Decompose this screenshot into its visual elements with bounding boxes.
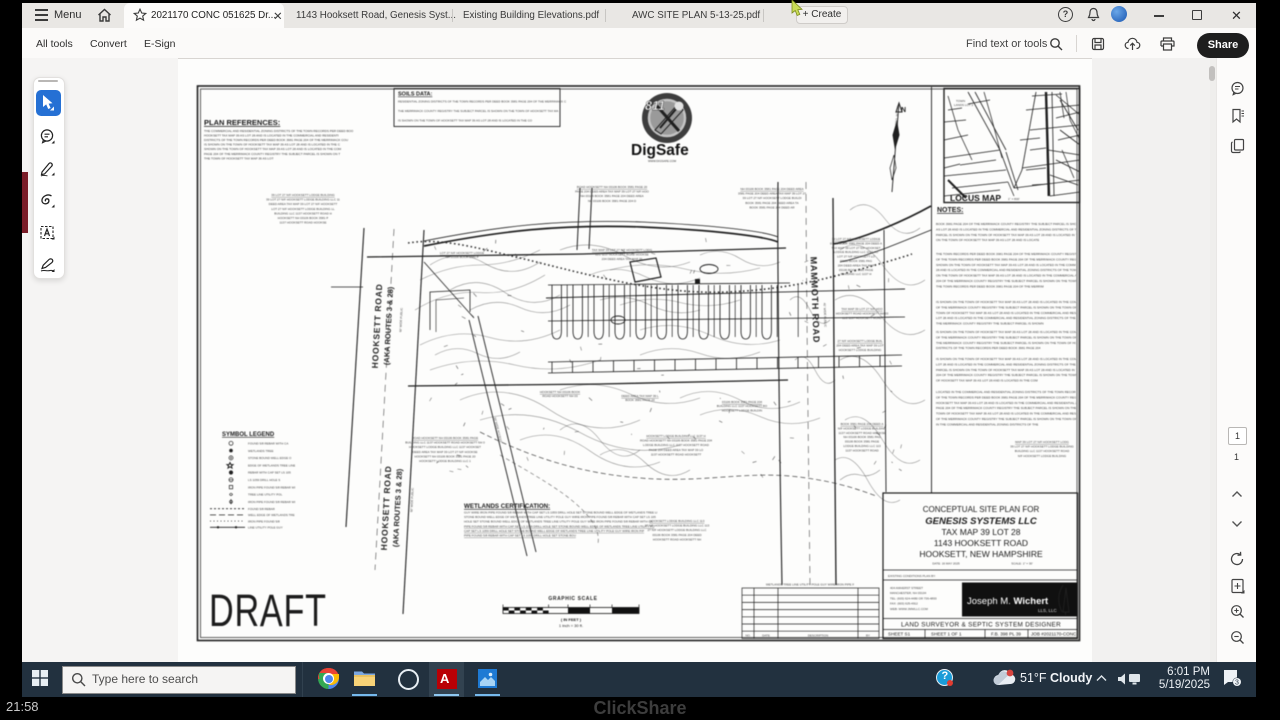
svg-text:TEL: (603) 624-4480 OR 736-4: TEL: (603) 624-4480 OR 736-4893 [890,596,937,600]
svg-text:28 AND IS LOCATED IN THE COMME: 28 AND IS LOCATED IN THE COMMERCIAL AND … [936,268,1092,272]
svg-text:HOOKSETT ROAD HOOKSETT NH: HOOKSETT ROAD HOOKSETT NH [653,537,701,541]
svg-text:STONE BOUND WELL EDGE OF WETLA: STONE BOUND WELL EDGE OF WETLANDS TREE L… [464,515,656,519]
svg-text:LODGE BUILDING LLC 113: LODGE BUILDING LLC 113 [843,444,881,448]
svg-text:GENESIS SYSTEMS LLC: GENESIS SYSTEMS LLC [925,516,1037,527]
svg-text:DESCRIPTION: DESCRIPTION [808,634,829,638]
svg-text:BUILDING LLC 1137 HOOKSETT ROA: BUILDING LLC 1137 HOOKSETT ROAD [1015,449,1070,453]
svg-text:DISTRICTS OF THE TOWN RECORDS: DISTRICTS OF THE TOWN RECORDS PER DEED B… [204,138,348,142]
svg-text:LODGE BUILDING LLC 1137 HOOKSE: LODGE BUILDING LLC 1137 HOOKSETT ROAD [643,443,710,447]
svg-text:BUILDING LLC 1137 HOOKSETT ROA: BUILDING LLC 1137 HOOKSETT ROAD HOOKSETT… [405,441,485,445]
svg-text:HOOKSETT TAX MAP 39 AS LOT 28: HOOKSETT TAX MAP 39 AS LOT 28 AND IS LOC… [204,134,339,138]
svg-text:FOUND 5/8 REBAR WITH CA: FOUND 5/8 REBAR WITH CA [248,442,288,446]
svg-text:BOOK 3581 PAGE 204 DEED AREA T: BOOK 3581 PAGE 204 DEED AREA TA [745,201,798,205]
svg-text:HOOKSETT LODGE BUILDING LLC 11: HOOKSETT LODGE BUILDING LLC 1137 HOOKSET [409,445,481,449]
svg-text:204 DEED AREA TAX MAP 39: 204 DEED AREA TAX MAP 39 [602,257,643,261]
svg-text:THE MERRIMACK COUNTY REGISTRY: THE MERRIMACK COUNTY REGISTRY THE SUBJEC… [936,341,1092,345]
svg-text:39 LOT 27 N/F HOOKSETT LODGE: 39 LOT 27 N/F HOOKSETT LODGE [832,237,880,241]
svg-text:Joseph M. Wichert: Joseph M. Wichert [967,596,1049,607]
svg-text:( IN FEET ): ( IN FEET ) [561,617,582,622]
svg-text:3581 PAGE 204 DEED AREA TAX MA: 3581 PAGE 204 DEED AREA TAX MAP 39 LOT 2… [738,192,806,196]
svg-text:MAP 39 LOT 27 N/F HOOKSETT LOD: MAP 39 LOT 27 N/F HOOKSETT LODG [1015,440,1069,444]
svg-text:LLC 1137 HOOKSETT ROAD: LLC 1137 HOOKSETT ROAD [842,316,882,320]
svg-text:OF HOOKSETT TAX MAP 39 AS LOT: OF HOOKSETT TAX MAP 39 AS LOT 28 AND IS … [936,379,1038,383]
svg-text:IS SHOWN ON THE TOWN OF HOOKSE: IS SHOWN ON THE TOWN OF HOOKSETT TAX MAP… [936,357,1092,361]
svg-text:FOUND 5/8 REBAR: FOUND 5/8 REBAR [248,507,276,511]
svg-text:RESIDENTIAL ZONING DISTRICTS O: RESIDENTIAL ZONING DISTRICTS OF THE TOWN… [398,100,567,104]
svg-text:HOOKSETT TAX MAP 39 AS LOT 28: HOOKSETT TAX MAP 39 AS LOT 28 AND IS LOC… [936,401,1092,405]
svg-text:REBAR WITH CAP SET LS 105: REBAR WITH CAP SET LS 105 [248,471,291,475]
svg-text:ON THE TOWN OF HOOKSETT TAX MA: ON THE TOWN OF HOOKSETT TAX MAP 39 AS LO… [936,274,1092,278]
svg-text:27 N/F HOOKSETT LODGE BUILDING: 27 N/F HOOKSETT LODGE BUILDING LLC 113 [645,524,710,528]
svg-text:LLS, LLC: LLS, LLC [1038,608,1058,613]
svg-text:NH 03106 BOOK 3581 P: NH 03106 BOOK 3581 P [445,255,478,259]
svg-text:PAGE 204 OF THE MERRIMACK COUN: PAGE 204 OF THE MERRIMACK COUNTY REGISTR… [936,406,1092,410]
svg-text:39 LOT 27 N/F HOOKSETT LODGE B: 39 LOT 27 N/F HOOKSETT LODGE BUILDING [1010,445,1074,449]
svg-text:HOOKSETT LODGE BUILDING LLC 11: HOOKSETT LODGE BUILDING LLC 1137 H [646,434,705,438]
svg-text:03106 BOOK 3581 PAGE 204 DEED: 03106 BOOK 3581 PAGE 204 DEED A [830,241,882,245]
svg-text:ON THE TOWN OF HOOKSETT TAX MA: ON THE TOWN OF HOOKSETT TAX MAP 39 AS LO… [936,238,1039,242]
svg-text:OF THE TOWN RECORDS PER DEED B: OF THE TOWN RECORDS PER DEED BOOK 3981 P… [936,257,1092,261]
svg-text:TOWN OF HOOKSETT TAX MAP 39 AS: TOWN OF HOOKSETT TAX MAP 39 AS LOT 28 AN… [936,311,1092,315]
svg-text:1" = 800': 1" = 800' [1008,197,1020,201]
svg-text:OF THE TOWN RECORDS PER DEED B: OF THE TOWN RECORDS PER DEED BOOK 3981 P… [936,395,1092,399]
svg-text:TAX MAP 39 LOT 27 N/F HOOKSETT: TAX MAP 39 LOT 27 N/F HOOKSETT LODG [592,248,653,252]
svg-text:LOT 28 AND IS LOCATED IN THE C: LOT 28 AND IS LOCATED IN THE COMMERCIAL … [936,316,1092,320]
svg-text:IS SHOWN ON THE TOWN OF HOOKSE: IS SHOWN ON THE TOWN OF HOOKSETT TAX MAP… [936,300,1092,304]
svg-text:ROAD HOOKSETT NH 03106 BOOK 35: ROAD HOOKSETT NH 03106 BOOK 3581 PAGE 20 [577,185,648,189]
svg-text:LOCUS MAP: LOCUS MAP [950,193,1001,203]
svg-text:404 AMHERST STREET: 404 AMHERST STREET [890,586,923,590]
svg-text:39 LOT 27 N/F HOOKSETT LODGE B: 39 LOT 27 N/F HOOKSETT LODGE BUILDI [743,196,802,200]
svg-text:PAGE 204 OF THE MERRIMACK COUN: PAGE 204 OF THE MERRIMACK COUNTY REGISTR… [204,152,340,156]
svg-text:N/F HOOKSETT LODGE BUILDING: N/F HOOKSETT LODGE BUILDING [1018,454,1067,458]
svg-text:IRON PIPE FOUND 5/8 REBAR WI: IRON PIPE FOUND 5/8 REBAR WI [248,500,296,504]
svg-text:HOOKSETT NH 03106 BOOK 3581 P: HOOKSETT NH 03106 BOOK 3581 P [278,216,329,220]
svg-text:NOTES:: NOTES: [937,207,963,214]
svg-text:LAND SURVEYOR & SEPTIC SYSTEM: LAND SURVEYOR & SEPTIC SYSTEM DESIGNER [901,622,1061,629]
svg-text:OF THE MERRIMACK COUNTY REGIST: OF THE MERRIMACK COUNTY REGISTRY THE SUB… [936,335,1092,339]
svg-text:WELL EDGE OF WETLANDS TRE: WELL EDGE OF WETLANDS TRE [248,513,295,517]
svg-text:LOT 28 AND IS LOCATED IN THE C: LOT 28 AND IS LOCATED IN THE COMMERCIAL … [936,362,1092,366]
svg-text:THE COMMERCIAL AND RESIDENTIAL: THE COMMERCIAL AND RESIDENTIAL ZONING DI… [204,129,354,133]
svg-text:HOLE SET STONE BOUND WELL EDGE: HOLE SET STONE BOUND WELL EDGE OF WETLAN… [464,520,652,524]
svg-text:EXISTING CONDITIONS PLAN BY:: EXISTING CONDITIONS PLAN BY: [888,574,936,578]
svg-text:BY: BY [866,634,870,638]
svg-text:NH 03106 BOOK 3581 PAGE 204 DE: NH 03106 BOOK 3581 PAGE 204 DEED AREA [580,194,643,198]
svg-text:THE MERRIMACK COUNTY REGISTRY: THE MERRIMACK COUNTY REGISTRY THE SUBJEC… [936,322,1044,326]
svg-text:PLAN REFERENCES:: PLAN REFERENCES: [204,118,280,127]
svg-text:NH 03106 BOOK 3581 PAGE 204 DE: NH 03106 BOOK 3581 PAGE 204 DEED AREA [740,187,803,191]
svg-text:39 LOT 27 N/F HOOKSETT LODGE B: 39 LOT 27 N/F HOOKSETT LODGE BUILDING LL… [266,198,340,202]
svg-text:WWW.DIGSAFE.COM: WWW.DIGSAFE.COM [648,159,677,163]
svg-text:204 OF THE MERRIMACK COUNTY RE: 204 OF THE MERRIMACK COUNTY REGISTRY THE… [936,373,1092,377]
svg-text:EDGE OF WETLANDS TREE LINE: EDGE OF WETLANDS TREE LINE [248,463,295,467]
svg-text:204 DEED AREA TAX MAP: 204 DEED AREA TAX MAP [838,263,875,267]
svg-text:GRAPHIC SCALE: GRAPHIC SCALE [548,596,597,602]
svg-text:THE TOWN RECORDS PER DEED BOOK: THE TOWN RECORDS PER DEED BOOK 3981 PAGE… [936,284,1044,288]
svg-text:(AKA ROUTES 3 & 28): (AKA ROUTES 3 & 28) [391,468,404,547]
svg-text:PIPE FOUND 5/8 REBAR WITH CAP: PIPE FOUND 5/8 REBAR WITH CAP SET LS 105… [464,524,655,528]
svg-text:THE MERRIMACK COUNTY REGISTRY: THE MERRIMACK COUNTY REGISTRY THE SUBJEC… [398,109,558,113]
svg-text:811: 811 [645,99,665,113]
svg-text:NH 03106 BOOK 3581 PAGE 204 D: NH 03106 BOOK 3581 PAGE 204 D [588,199,637,203]
svg-text:204 OF THE MERRIMACK COUNTY RE: 204 OF THE MERRIMACK COUNTY REGISTRY THE… [936,279,1092,283]
svg-text:TAX MAP 39 LOT 28: TAX MAP 39 LOT 28 [942,527,1021,537]
svg-text:LOT 27 N/F HOOKSETT LO: LOT 27 N/F HOOKSETT LO [837,255,875,259]
svg-text:LANDS LOT 2: LANDS LOT 2 [954,103,973,107]
svg-text:1137 HOOKSETT ROAD HOOKSE: 1137 HOOKSETT ROAD HOOKSE [839,431,886,435]
svg-text:LOT 27 N/F HOOKSETT LODGE BUIL: LOT 27 N/F HOOKSETT LODGE BUILDING LL [271,207,335,211]
svg-text:IRON PIPE FOUND 5/8 REBAR WI: IRON PIPE FOUND 5/8 REBAR WI [248,485,296,489]
svg-text:ROAD HOOKSETT NH 03106 BOOK 35: ROAD HOOKSETT NH 03106 BOOK 3581 PAGE 20… [640,439,712,443]
svg-text:IRON PIPE FOUND 5/8: IRON PIPE FOUND 5/8 [248,519,280,523]
svg-text:CONCEPTUAL SITE PLAN FOR: CONCEPTUAL SITE PLAN FOR [923,505,1040,514]
svg-text:MANCHESTER, NH 03104: MANCHESTER, NH 03104 [890,591,927,595]
svg-text:OF THE MERRIMACK COUNTY REGIST: OF THE MERRIMACK COUNTY REGISTRY THE SUB… [936,305,1092,309]
svg-text:HOOKSETT LODGE BUILDING: HOOKSETT LODGE BUILDING [839,348,882,352]
svg-text:MAMMOTH ROAD: MAMMOTH ROAD [808,256,821,343]
svg-text:DEED AREA TAX MAP 39 LOT 27 N/: DEED AREA TAX MAP 39 LOT 27 N/F HOOKSE [413,450,478,454]
svg-text:BOOK 3581 PAGE 204 DEED A: BOOK 3581 PAGE 204 DEED A [841,422,884,426]
svg-text:IN THE COMMERCIAL AND RESIDENT: IN THE COMMERCIAL AND RESIDENTIAL ZONING… [936,422,1038,426]
svg-text:AS LOT 28 AND IS LOCATED IN TH: AS LOT 28 AND IS LOCATED IN THE COMMERCI… [936,227,1092,231]
svg-text:THE TOWN OF HOOKSETT TAX MAP 3: THE TOWN OF HOOKSETT TAX MAP 39 AS LOT [204,156,274,160]
svg-text:NH 03106 BOOK 3581 PAG: NH 03106 BOOK 3581 PAG [843,435,881,439]
svg-text:MAG. NORTH: MAG. NORTH [894,106,900,125]
svg-text:TOWN OF HOOKSETT TAX MAP 39 AS: TOWN OF HOOKSETT TAX MAP 39 AS LOT 28 AN… [936,412,1092,416]
svg-text:HOOKSETT NH 03106 BOOK 3581 PA: HOOKSETT NH 03106 BOOK 3581 PAGE 20 [415,454,476,458]
svg-text:03106 BOOK 3581 PAGE: 03106 BOOK 3581 PAGE [839,268,873,272]
svg-text:LINE UTILITY POLE GUY: LINE UTILITY POLE GUY [248,526,283,530]
svg-text:IS SHOWN ON THE TOWN OF HOOKSE: IS SHOWN ON THE TOWN OF HOOKSETT TAX MAP… [936,330,1092,334]
svg-text:SHEET 1 OF 1: SHEET 1 OF 1 [931,632,962,637]
svg-text:CAP SET LS 1059 DRILL HOLE SET: CAP SET LS 1059 DRILL HOLE SET STONE BOU… [464,529,644,533]
svg-text:PARCEL IS SHOWN ON THE TOWN OF: PARCEL IS SHOWN ON THE TOWN OF HOOKSETT … [936,368,1092,372]
svg-text:27 N/F HOOKSETT LODGE BUILDING: 27 N/F HOOKSETT LODGE BUILDING LLC [648,528,708,532]
svg-text:DATE: DATE [762,634,770,638]
svg-text:BOOK 3581 PAGE 20: BOOK 3581 PAGE 20 [625,398,655,402]
svg-text:LLC 1137 HOOKSETT ROAD HOOKSE: LLC 1137 HOOKSETT ROAD HOOKSE [595,253,648,257]
svg-text:TAX MAP 39 LOT 27 N/F HOOKSET: TAX MAP 39 LOT 27 N/F HOOKSET [831,246,880,250]
svg-text:HOOKSETT LODGE BUILDING LLC 11: HOOKSETT LODGE BUILDING LLC 113 [650,519,705,523]
svg-text:TREE LINE UTILITY POL: TREE LINE UTILITY POL [248,493,283,497]
svg-text:WETLANDS CERTIFICATION:: WETLANDS CERTIFICATION: [464,503,550,510]
svg-text:LOCATED IN THE COMMERCIAL AND: LOCATED IN THE COMMERCIAL AND RESIDENTIA… [936,390,1092,394]
svg-text:HOOKSETT LODGE BUILDING LLC 1: HOOKSETT LODGE BUILDING LLC 1 [419,459,471,463]
svg-text:TAX MAP 39 LOT 27 N/F HOO: TAX MAP 39 LOT 27 N/F HOO [841,307,883,311]
svg-text:WETLANDS TREE LINE UTILITY POL: WETLANDS TREE LINE UTILITY POLE GUY WIRE… [766,583,855,587]
svg-text:SHOWN ON THE TOWN OF HOOKSETT: SHOWN ON THE TOWN OF HOOKSETT TAX MAP 39… [204,147,342,151]
svg-text:60' WIDE PUBLIC: 60' WIDE PUBLIC [398,307,403,332]
svg-text:DISTRICTS OF THE TOWN RECORDS: DISTRICTS OF THE TOWN RECORDS PER DEED B… [936,346,1041,350]
svg-text:SCALE: 1" = 30': SCALE: 1" = 30' [1011,562,1033,566]
svg-text:HOOKSETT LODGE BUILDIN: HOOKSETT LODGE BUILDIN [722,408,762,412]
svg-text:BUILDING LLC 1137 H: BUILDING LLC 1137 H [841,272,872,276]
svg-text:STONE BOUND WELL EDGE O: STONE BOUND WELL EDGE O [248,456,292,460]
svg-text:DRAFT: DRAFT [209,587,327,637]
svg-text:BOOK 3981 PAGE 204 OF THE MERR: BOOK 3981 PAGE 204 OF THE MERRIMACK COUN… [936,222,1092,226]
svg-text:03106 BOOK 3581 PAG: 03106 BOOK 3581 PAG [840,259,873,263]
svg-text:27 N/F HOOKSETT LODGE BUIL: 27 N/F HOOKSETT LODGE BUIL [837,339,882,343]
svg-text:1137 HOOKSETT ROAD HOOKSE: 1137 HOOKSETT ROAD HOOKSE [280,221,327,225]
svg-text:PAGE 204 DEED AREA TAX MAP 39: PAGE 204 DEED AREA TAX MAP 39 LOT 27 N/F… [575,190,649,194]
svg-text:N: N [901,107,906,114]
svg-text:OF THE MERRIMACK COUNTY REGIST: OF THE MERRIMACK COUNTY REGISTRY THE SUB… [936,417,1092,421]
svg-text:SOILS DATA:: SOILS DATA: [398,92,432,98]
svg-text:IS SHOWN ON THE TOWN OF HOOKSE: IS SHOWN ON THE TOWN OF HOOKSETT TAX MAP… [398,119,533,123]
svg-text:PARCEL IS SHOWN ON THE TOWN OF: PARCEL IS SHOWN ON THE TOWN OF HOOKSETT … [936,233,1092,237]
svg-text:GUY WIRE IRON PIPE FOUND 5/8 R: GUY WIRE IRON PIPE FOUND 5/8 REBAR WITH … [464,511,657,515]
svg-text:PAGE 204 DEED AREA TAX MAP 39: PAGE 204 DEED AREA TAX MAP 39 LO [649,448,704,452]
svg-text:(AKA ROUTES 3 & 28): (AKA ROUTES 3 & 28) [382,286,395,365]
svg-text:39 LOT 27 N/F HOOKSETT LODGE B: 39 LOT 27 N/F HOOKSETT LODGE BUILDING [271,193,335,197]
svg-text:BUILDING LLC 1137 HOOKSETT ROA: BUILDING LLC 1137 HOOKSETT ROAD H [274,211,332,215]
svg-text:1 inch = 30 ft.: 1 inch = 30 ft. [559,623,583,628]
svg-text:SYMBOL LEGEND: SYMBOL LEGEND [222,432,275,438]
svg-text:SHOWN ON THE TOWN OF HOOKSETT: SHOWN ON THE TOWN OF HOOKSETT TAX MAP 39… [936,263,1092,267]
svg-text:03106 BOOK 3581 PAGE: 03106 BOOK 3581 PAGE [845,440,879,444]
svg-text:LODGE BUILDING LLC 1137 HO: LODGE BUILDING LLC 1137 HO [834,250,879,254]
svg-text:N/F HOOKSETT LODGE BUILDING: N/F HOOKSETT LODGE BUILDING [838,426,887,430]
svg-text:NO.: NO. [745,634,751,638]
svg-text:IS SHOWN ON THE TOWN OF HOOKSE: IS SHOWN ON THE TOWN OF HOOKSETT TAX MAP… [204,143,341,147]
svg-text:SHEET S1: SHEET S1 [888,632,911,637]
svg-text:1137 HOOKSETT ROAD HOOKSETT: 1137 HOOKSETT ROAD HOOKSETT [651,452,702,456]
svg-text:WEB: WWW.JMWLLC.COM: WEB: WWW.JMWLLC.COM [890,607,928,611]
svg-text:60' WIDE PUBLIC: 60' WIDE PUBLIC [409,487,414,512]
svg-text:40' WIDE PUBLIC: 40' WIDE PUBLIC [823,303,828,328]
svg-text:ROAD HOOKSETT NH 03: ROAD HOOKSETT NH 03 [542,394,578,398]
svg-text:WETLANDS TREE: WETLANDS TREE [248,449,273,453]
svg-text:BOOK 3581 PAGE 204 DEED AR: BOOK 3581 PAGE 204 DEED AR [750,205,796,209]
svg-text:FAX: (603) 625-4912: FAX: (603) 625-4912 [890,602,918,606]
svg-text:DigSafe: DigSafe [631,142,689,159]
svg-text:DATE: 16 MAY 2025: DATE: 16 MAY 2025 [932,562,960,566]
svg-text:HOOKSETT, NEW HAMPSHIRE: HOOKSETT, NEW HAMPSHIRE [919,549,1043,559]
svg-text:3: 3 [1235,680,1239,687]
svg-text:F.B. 398 PL 39: F.B. 398 PL 39 [991,632,1021,637]
svg-text:1137 HOOKSETT ROAD: 1137 HOOKSETT ROAD [845,448,879,452]
svg-text:03106 BOOK 3581 PAGE 204 DEED: 03106 BOOK 3581 PAGE 204 DEED [652,533,702,537]
svg-text:JOB #2021170-CONC: JOB #2021170-CONC [1031,632,1077,637]
svg-text:HOOKSETT ROAD HOOKSETT NH 03: HOOKSETT ROAD HOOKSETT NH 03 [836,312,889,316]
svg-text:PIPE FOUND 5/8 REBAR WITH CAP: PIPE FOUND 5/8 REBAR WITH CAP SET LS 105… [464,534,576,538]
svg-text:ROAD HOOKSETT NH 03106 BOOK 35: ROAD HOOKSETT NH 03106 BOOK 3581 PAGE [412,436,478,440]
svg-text:1143 HOOKSETT ROAD: 1143 HOOKSETT ROAD [934,538,1028,548]
svg-text:DEED AREA TAX MAP 39 LOT 27 N/: DEED AREA TAX MAP 39 LOT 27 N/F HOOKSETT [269,202,338,206]
svg-text:LS 1059 DRILL HOLE S: LS 1059 DRILL HOLE S [248,478,280,482]
svg-text:204 DEED AREA TAX MAP 39 LOT: 204 DEED AREA TAX MAP 39 LOT [836,344,884,348]
svg-text:THE TOWN RECORDS PER DEED BOOK: THE TOWN RECORDS PER DEED BOOK 3981 PAGE… [936,252,1092,256]
